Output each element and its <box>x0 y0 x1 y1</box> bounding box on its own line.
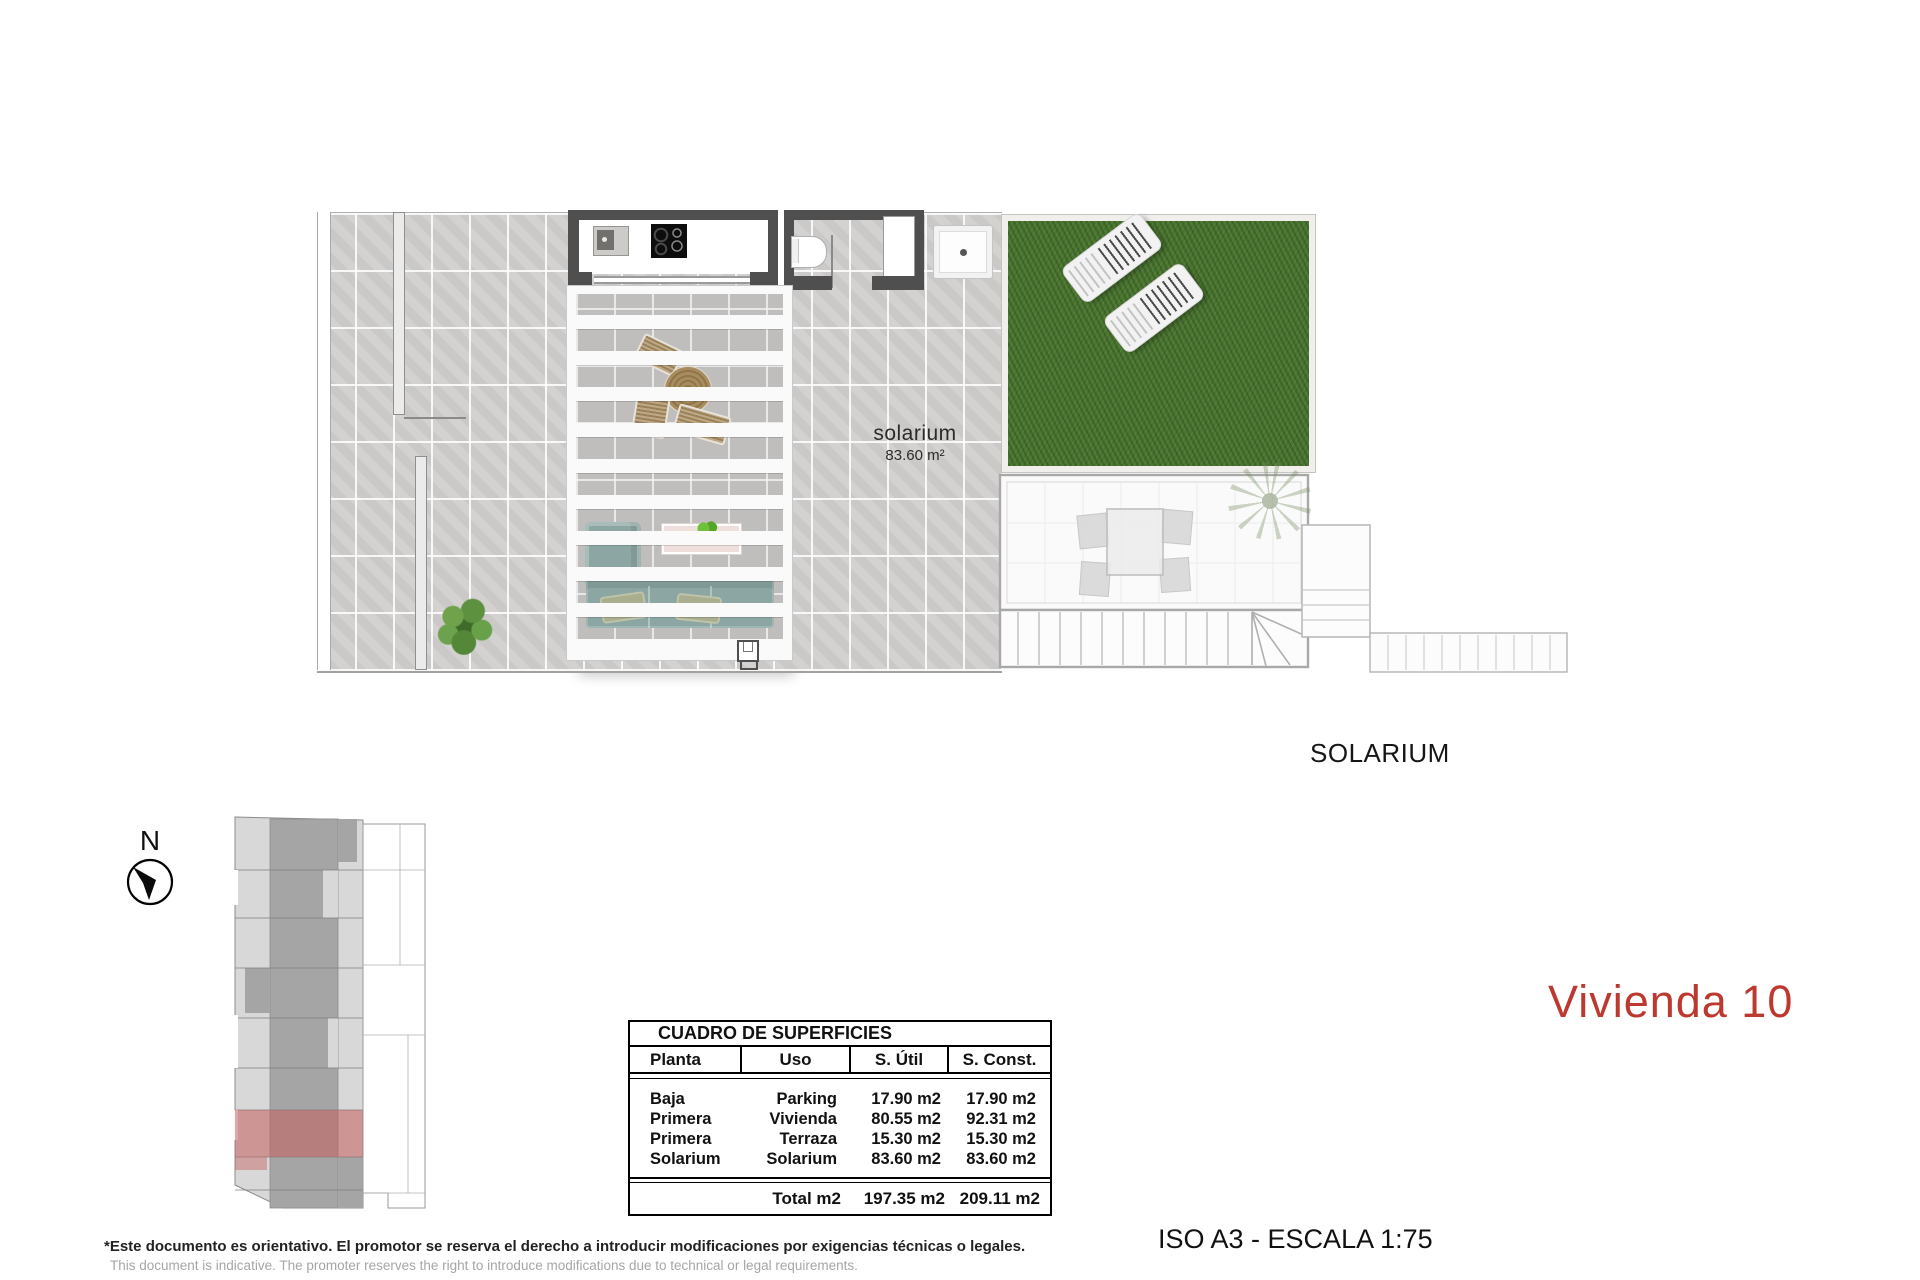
cell-planta: Primera <box>630 1130 740 1149</box>
stair-handrail <box>404 417 466 419</box>
cell-const: 15.30 m2 <box>947 1130 1050 1149</box>
cooktop-icon <box>651 224 687 258</box>
building-notch <box>323 870 338 918</box>
faded-dining-table <box>1106 508 1164 576</box>
cell-const: 83.60 m2 <box>947 1150 1050 1169</box>
highlighted-unit <box>235 1110 363 1157</box>
cell-planta: Solarium <box>630 1150 740 1169</box>
faded-chair <box>1161 509 1194 545</box>
col-header-uso: Uso <box>740 1047 849 1072</box>
table-body: Baja Parking 17.90 m2 17.90 m2 Primera V… <box>630 1079 1050 1169</box>
door-leaf <box>883 216 915 278</box>
potted-plant-icon <box>435 596 495 658</box>
disclaimer-es: *Este documento es orientativo. El promo… <box>104 1238 1025 1255</box>
interior-wall-lower <box>415 456 427 670</box>
table-title-row: CUADRO DE SUPERFICIES <box>630 1022 1050 1047</box>
room-name: solarium <box>835 422 995 446</box>
col-header-const: S. Const. <box>947 1047 1050 1072</box>
room-area: 83.60 m² <box>835 447 995 464</box>
building-mass-dark <box>338 819 357 862</box>
scale-label: ISO A3 - ESCALA 1:75 <box>1158 1224 1433 1255</box>
col-header-util: S. Útil <box>849 1047 947 1072</box>
kitchen-block <box>568 210 778 274</box>
total-const: 209.11 m2 <box>947 1189 1050 1209</box>
left-wall <box>317 212 331 670</box>
grass-lawn <box>1002 215 1315 472</box>
cell-planta: Baja <box>630 1090 740 1109</box>
floor-plan: solarium 83.60 m² <box>317 210 1570 688</box>
stairs-landing <box>1302 525 1370 637</box>
disclaimer-en: This document is indicative. The promote… <box>110 1258 858 1273</box>
surfaces-table: CUADRO DE SUPERFICIES Planta Uso S. Útil… <box>628 1020 1052 1216</box>
table-row: Primera Terraza 15.30 m2 15.30 m2 <box>630 1129 1050 1149</box>
cell-util: 80.55 m2 <box>849 1110 947 1129</box>
floor-drain-icon <box>737 640 759 662</box>
cell-util: 17.90 m2 <box>849 1090 947 1109</box>
north-label: N <box>140 825 160 856</box>
cell-planta: Primera <box>630 1110 740 1129</box>
toilet-icon <box>791 236 827 268</box>
unit-title: Vivienda 10 <box>1548 976 1793 1028</box>
stairs-straight-flight <box>1000 610 1308 667</box>
table-header-row: Planta Uso S. Útil S. Const. <box>630 1047 1050 1074</box>
wall-stub <box>872 276 924 290</box>
palm-tree-icon <box>1228 462 1312 540</box>
shower-tray-icon <box>933 225 993 279</box>
cell-const: 17.90 m2 <box>947 1090 1050 1109</box>
north-compass: N <box>110 824 190 914</box>
cell-util: 83.60 m2 <box>849 1150 947 1169</box>
col-header-planta: Planta <box>630 1050 740 1070</box>
pergola <box>567 286 792 660</box>
building-mass-dark <box>245 968 270 1013</box>
highlighted-unit <box>235 1157 267 1170</box>
total-util: 197.35 m2 <box>849 1189 947 1209</box>
stairs-right-flight <box>1370 633 1567 672</box>
sink-icon <box>593 226 629 256</box>
faded-chair <box>1076 513 1109 550</box>
table-row: Solarium Solarium 83.60 m2 83.60 m2 <box>630 1149 1050 1169</box>
total-label: Total m2 <box>740 1189 849 1209</box>
cell-const: 92.31 m2 <box>947 1110 1050 1129</box>
building-notch <box>328 1018 338 1068</box>
site-key-plan <box>228 810 438 1220</box>
room-label: solarium 83.60 m² <box>835 422 995 464</box>
adjacent-wing-outline <box>363 824 425 1208</box>
cell-uso: Solarium <box>740 1150 849 1169</box>
table-title: CUADRO DE SUPERFICIES <box>630 1023 892 1044</box>
table-total-row: Total m2 197.35 m2 209.11 m2 <box>630 1183 1050 1214</box>
floor-drain-bracket <box>740 662 758 670</box>
pergola-slats <box>576 294 783 652</box>
interior-wall-upper <box>393 212 405 415</box>
cell-uso: Terraza <box>740 1130 849 1149</box>
cell-uso: Vivienda <box>740 1110 849 1129</box>
table-row: Baja Parking 17.90 m2 17.90 m2 <box>630 1089 1050 1109</box>
kitchen-window-sill <box>594 276 750 284</box>
cell-uso: Parking <box>740 1090 849 1109</box>
section-caption: SOLARIUM <box>1310 738 1450 769</box>
table-row: Primera Vivienda 80.55 m2 92.31 m2 <box>630 1109 1050 1129</box>
cell-util: 15.30 m2 <box>849 1130 947 1149</box>
building-mass-dark <box>338 1157 363 1208</box>
